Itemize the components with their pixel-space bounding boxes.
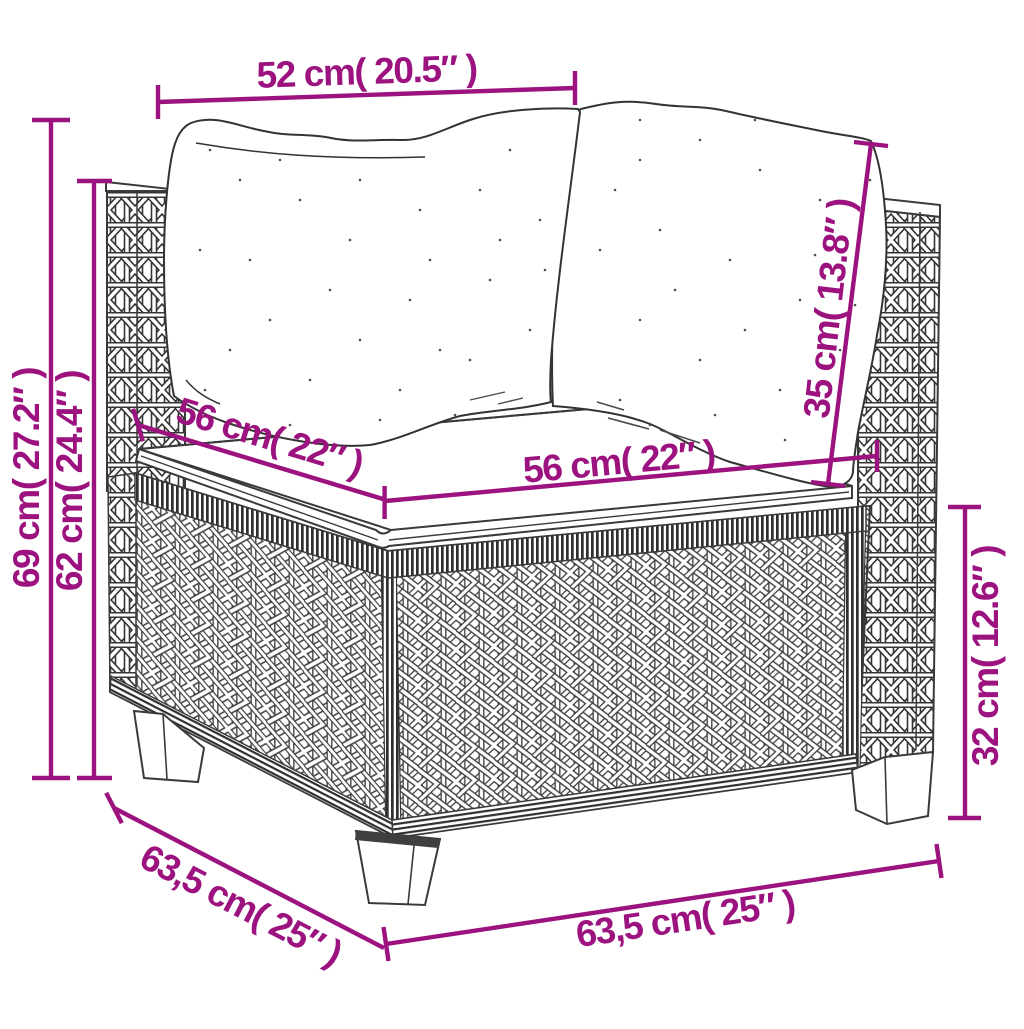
svg-text:69 cm( 27.2″ ): 69 cm( 27.2″ ) [6,368,47,588]
svg-text:62 cm( 24.4″ ): 62 cm( 24.4″ ) [49,371,90,591]
svg-text:52 cm( 20.5″ ): 52 cm( 20.5″ ) [256,47,478,96]
svg-text:32 cm( 12.6″ ): 32 cm( 12.6″ ) [965,546,1006,766]
